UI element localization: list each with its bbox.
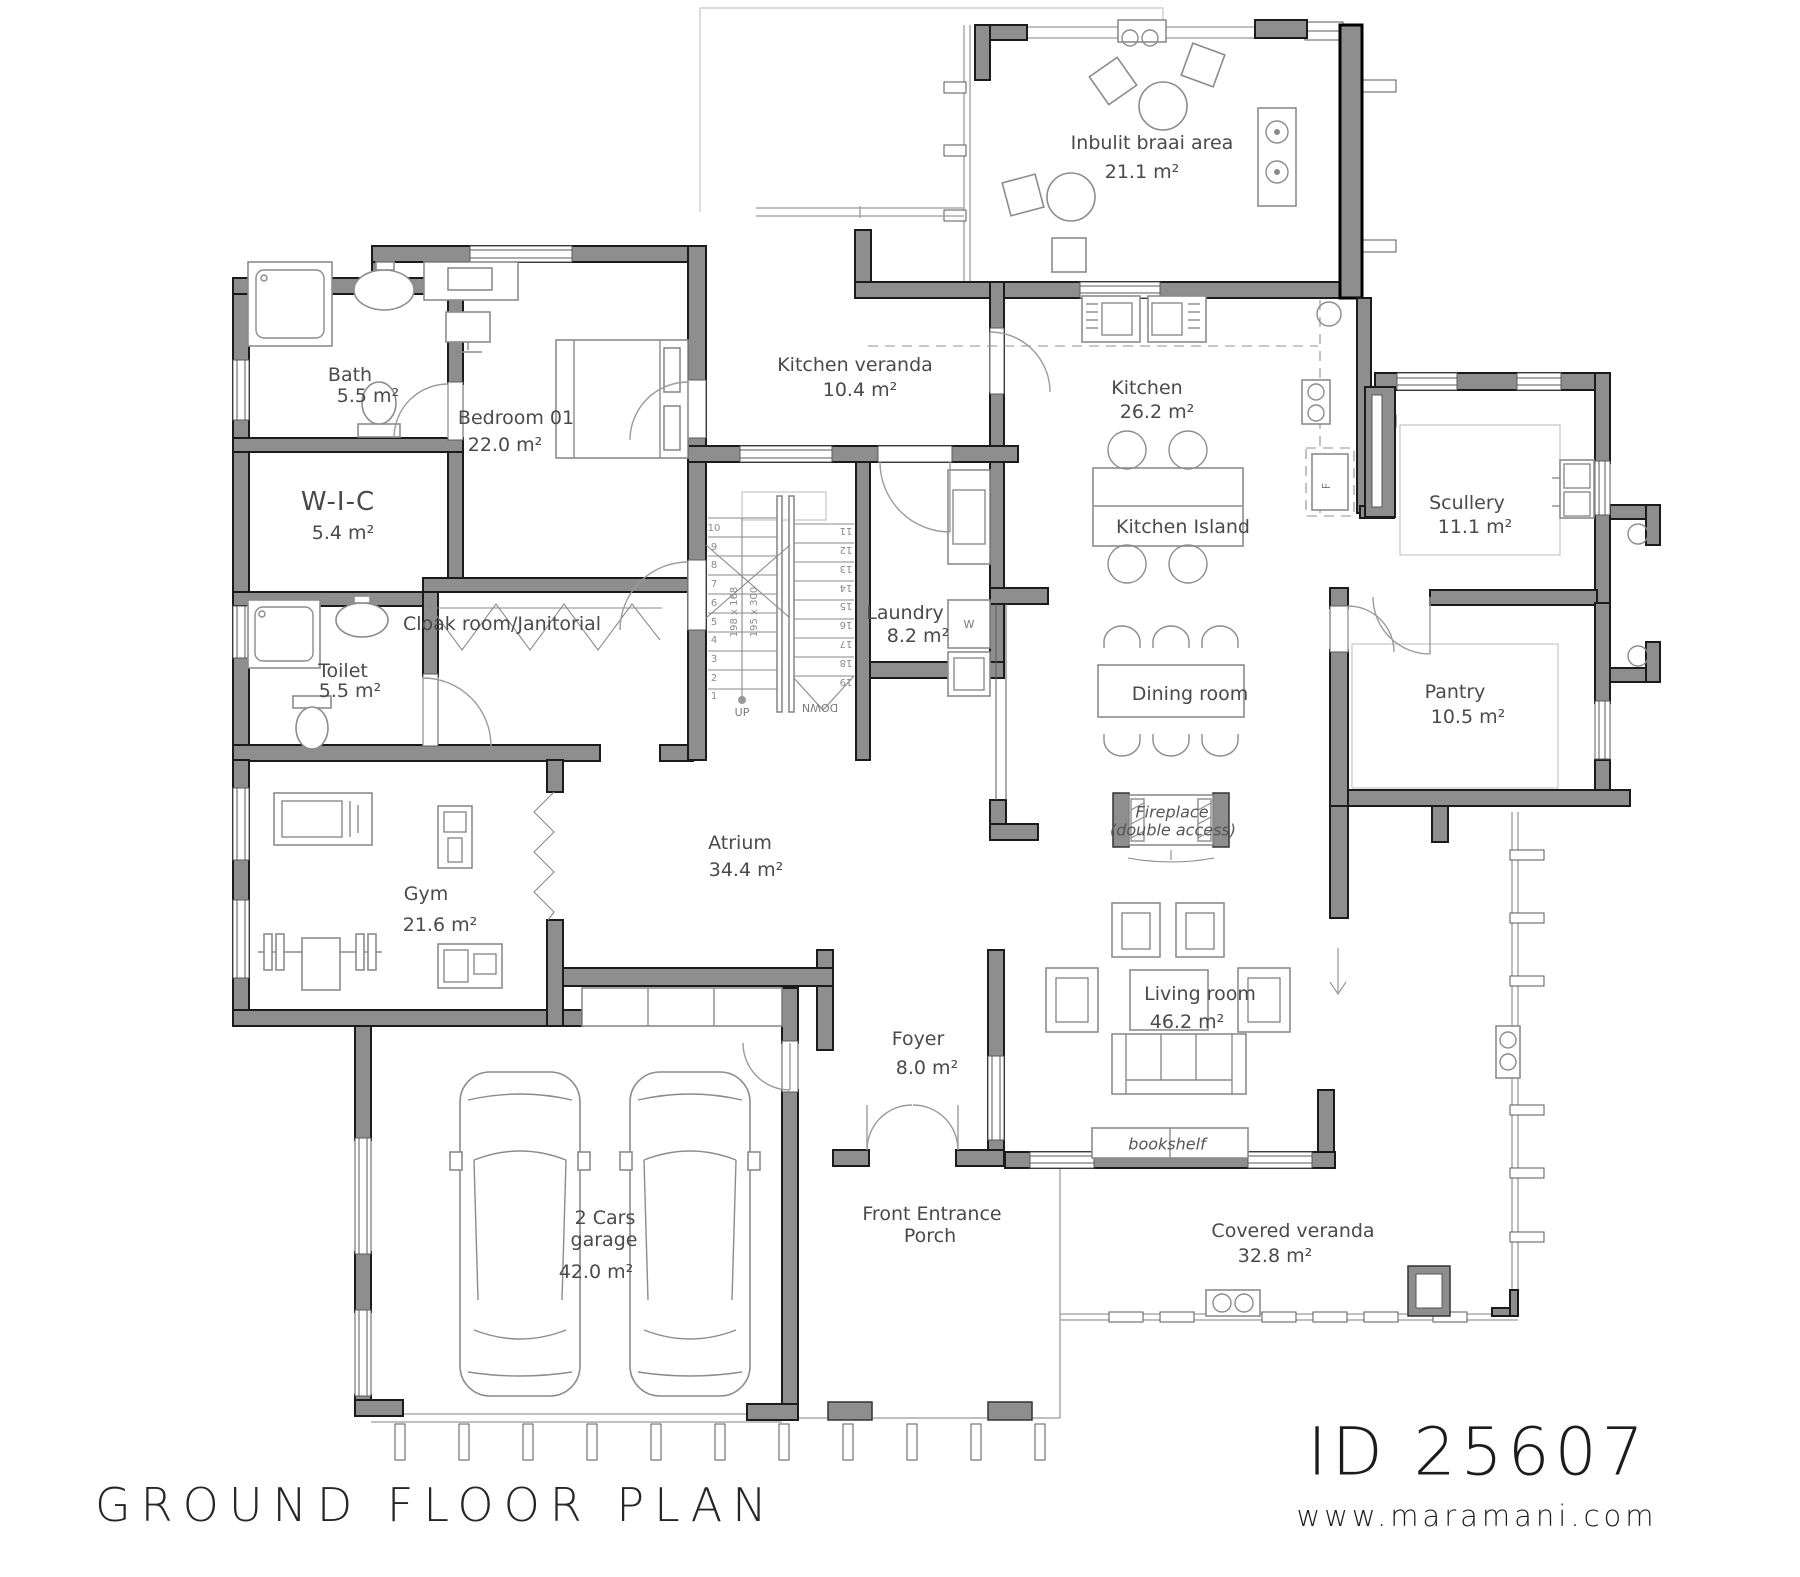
room-label-garage-area: 42.0 m² bbox=[559, 1261, 633, 1283]
room-label-laundry-name: Laundry bbox=[866, 602, 943, 624]
svg-text:F: F bbox=[1320, 483, 1333, 489]
svg-text:16: 16 bbox=[840, 619, 853, 630]
room-label-bookshelf: bookshelf bbox=[1128, 1135, 1205, 1154]
room-label-wic-area: 5.4 m² bbox=[312, 522, 374, 544]
scullery-sink bbox=[1552, 460, 1594, 518]
room-label-laundry-area: 8.2 m² bbox=[887, 625, 949, 647]
room-label-bedroom-name: Bedroom 01 bbox=[458, 407, 574, 429]
kitchen-island bbox=[1093, 431, 1243, 583]
room-label-dining: Dining room bbox=[1132, 683, 1249, 705]
room-label-porch-line2: Porch bbox=[904, 1225, 956, 1247]
room-label-kitchen-veranda-area: 10.4 m² bbox=[823, 379, 897, 401]
laundry-appliances bbox=[948, 470, 990, 696]
room-label-scullery-name: Scullery bbox=[1429, 492, 1505, 514]
room-label-living-name: Living room bbox=[1144, 983, 1256, 1005]
room-label-foyer-name: Foyer bbox=[892, 1028, 945, 1050]
room-label-covered-veranda-name: Covered veranda bbox=[1211, 1220, 1374, 1242]
room-label-fireplace-name: Fireplace bbox=[1135, 803, 1208, 822]
svg-text:15: 15 bbox=[840, 600, 853, 611]
floor-title: GROUND FLOOR PLAN bbox=[95, 1478, 777, 1532]
svg-text:5: 5 bbox=[711, 617, 717, 628]
room-label-kitchen-area: 26.2 m² bbox=[1120, 401, 1194, 423]
room-label-kitchen-name: Kitchen bbox=[1111, 377, 1182, 399]
room-label-garage-line1: 2 Cars bbox=[575, 1207, 636, 1229]
room-label-braai-name: Inbulit braai area bbox=[1071, 132, 1234, 154]
room-label-pantry-name: Pantry bbox=[1425, 681, 1486, 703]
room-label-fireplace-note: (double access) bbox=[1110, 821, 1236, 840]
bath-fixtures bbox=[248, 262, 414, 437]
step-arrow bbox=[1330, 948, 1346, 994]
svg-text:7: 7 bbox=[711, 579, 717, 590]
website-url: www.maramani.com bbox=[1296, 1499, 1657, 1533]
furniture bbox=[248, 20, 1594, 1396]
svg-text:10: 10 bbox=[708, 523, 721, 534]
svg-text:4: 4 bbox=[711, 635, 717, 646]
room-label-foyer-area: 8.0 m² bbox=[896, 1057, 958, 1079]
room-label-gym-area: 21.6 m² bbox=[403, 914, 477, 936]
room-label-wic-name: W-I-C bbox=[301, 487, 375, 517]
room-label-atrium-name: Atrium bbox=[708, 832, 772, 854]
room-label-toilet-area: 5.5 m² bbox=[319, 680, 381, 702]
garage-storage bbox=[582, 988, 782, 1026]
svg-text:198 x 168: 198 x 168 bbox=[729, 587, 740, 637]
svg-text:2: 2 bbox=[711, 673, 717, 684]
svg-text:17: 17 bbox=[840, 638, 853, 649]
svg-text:195 x 300: 195 x 300 bbox=[749, 587, 760, 637]
svg-text:3: 3 bbox=[711, 654, 717, 665]
room-label-toilet-name: Toilet bbox=[318, 660, 368, 682]
svg-text:13: 13 bbox=[840, 563, 853, 574]
svg-text:14: 14 bbox=[840, 582, 853, 593]
gym-equipment bbox=[258, 793, 502, 990]
veranda-items bbox=[1206, 1026, 1520, 1316]
room-label-living-area: 46.2 m² bbox=[1150, 1011, 1224, 1033]
svg-text:W: W bbox=[964, 618, 975, 631]
car-2 bbox=[620, 1072, 760, 1396]
room-label-braai-area: 21.1 m² bbox=[1105, 161, 1179, 183]
room-label-atrium-area: 34.4 m² bbox=[709, 859, 783, 881]
svg-text:1: 1 bbox=[711, 691, 717, 702]
car-1 bbox=[450, 1072, 590, 1396]
room-label-gym-name: Gym bbox=[404, 883, 448, 905]
room-label-bedroom-area: 22.0 m² bbox=[468, 434, 542, 456]
room-label-cloak: Cloak room/Janitorial bbox=[403, 613, 601, 635]
floorplan-drawing: 1 2 3 4 5 6 7 8 9 10 11 12 13 14 15 16 1… bbox=[0, 0, 1800, 1577]
room-label-bath-name: Bath bbox=[328, 364, 372, 386]
room-label-bath-area: 5.5 m² bbox=[337, 385, 399, 407]
svg-text:DOWN: DOWN bbox=[802, 701, 838, 714]
svg-text:9: 9 bbox=[711, 542, 717, 553]
room-label-scullery-area: 11.1 m² bbox=[1438, 516, 1512, 538]
svg-text:18: 18 bbox=[840, 657, 853, 668]
plan-id: ID 25607 bbox=[1307, 1414, 1648, 1491]
svg-text:11: 11 bbox=[840, 525, 853, 536]
room-label-garage-line2: garage bbox=[571, 1229, 638, 1251]
bed bbox=[556, 340, 688, 458]
room-label-porch-line1: Front Entrance bbox=[862, 1203, 1001, 1225]
svg-text:19: 19 bbox=[840, 676, 853, 687]
room-label-covered-veranda-area: 32.8 m² bbox=[1238, 1245, 1312, 1267]
floor-plan-page: 1 2 3 4 5 6 7 8 9 10 11 12 13 14 15 16 1… bbox=[0, 0, 1800, 1577]
desk bbox=[424, 262, 518, 352]
svg-text:12: 12 bbox=[840, 544, 853, 555]
room-label-kitchen-veranda-name: Kitchen veranda bbox=[777, 354, 933, 376]
svg-text:UP: UP bbox=[735, 706, 750, 719]
room-label-pantry-area: 10.5 m² bbox=[1431, 706, 1505, 728]
svg-text:8: 8 bbox=[711, 560, 717, 571]
svg-text:6: 6 bbox=[711, 598, 717, 609]
room-label-kitchen-island: Kitchen Island bbox=[1116, 516, 1250, 538]
